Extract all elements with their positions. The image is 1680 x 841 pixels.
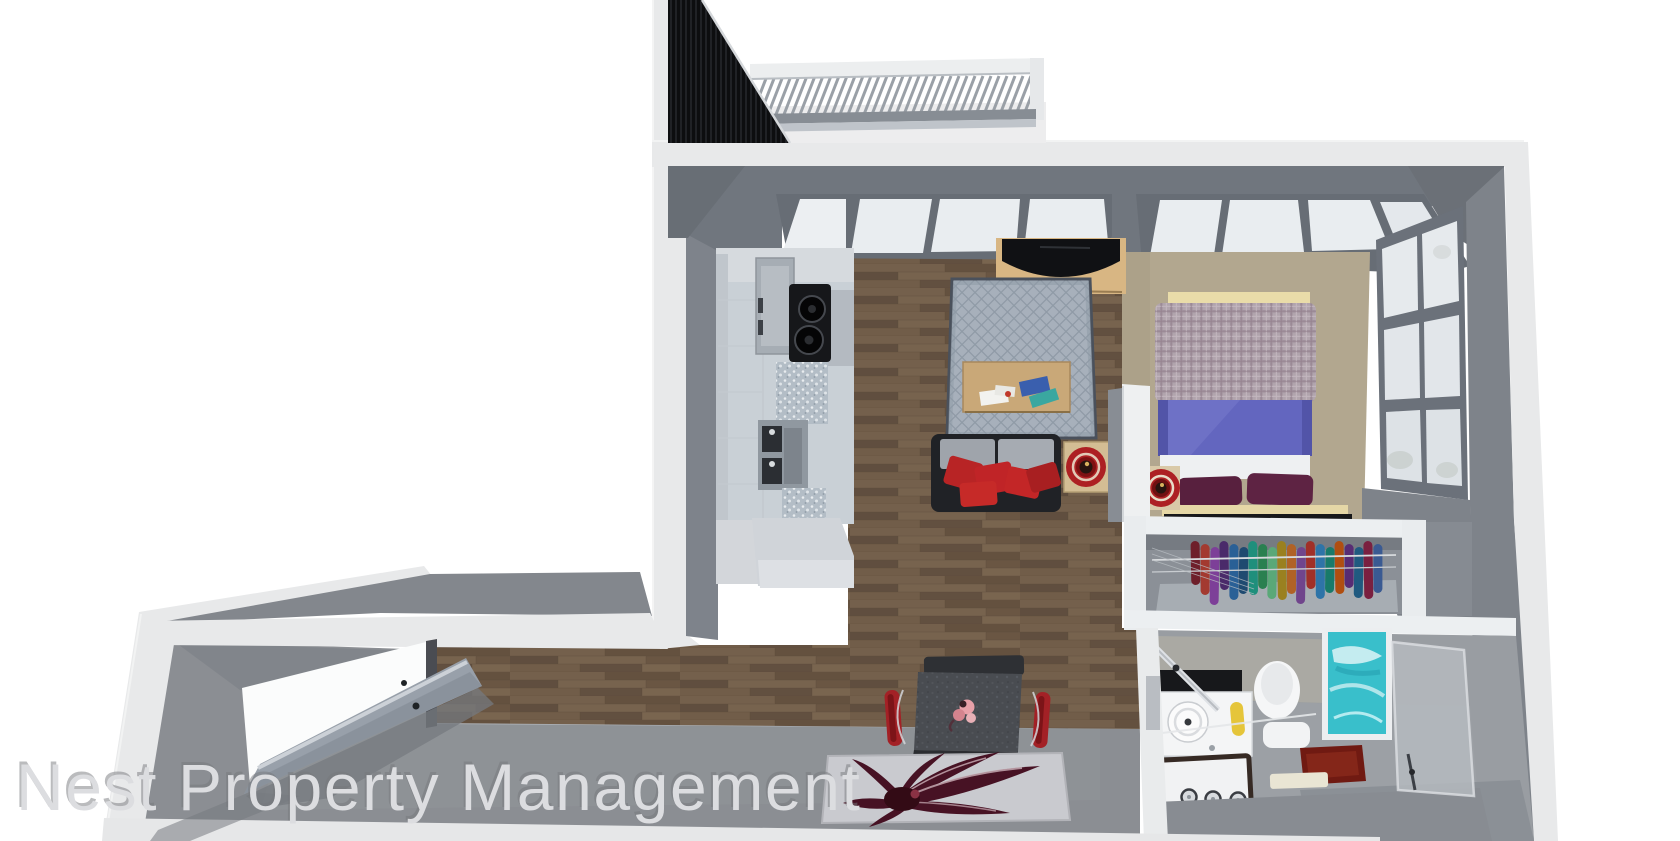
svg-text:Nest Property Management: Nest Property Management	[16, 750, 861, 824]
